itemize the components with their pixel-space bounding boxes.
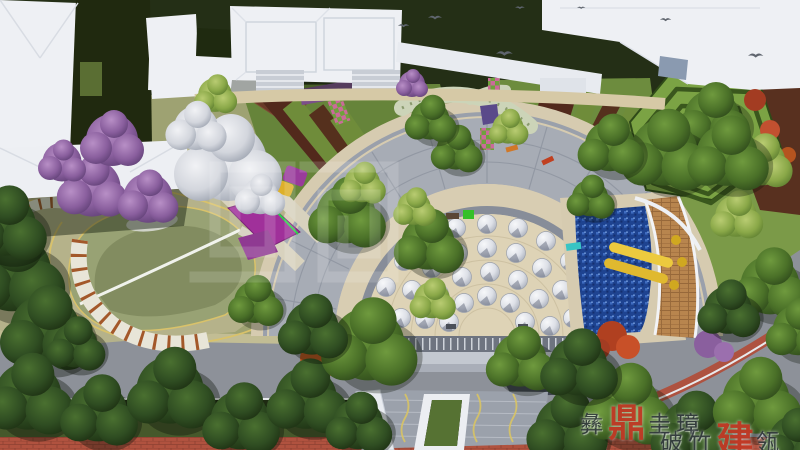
wood-bench	[446, 213, 459, 219]
slide-pad	[669, 280, 679, 290]
slide-pad	[677, 257, 687, 267]
green-bench	[463, 210, 474, 219]
rendering-viewport: 彝鼎圭璋 破竹建瓴	[0, 0, 800, 450]
roof-garden-patch	[196, 28, 235, 58]
court-bench	[446, 324, 456, 329]
louver-panel	[658, 56, 688, 80]
scene-rendering	[0, 0, 800, 450]
slide-pad	[671, 235, 681, 245]
courtyard-lawn	[80, 62, 102, 96]
